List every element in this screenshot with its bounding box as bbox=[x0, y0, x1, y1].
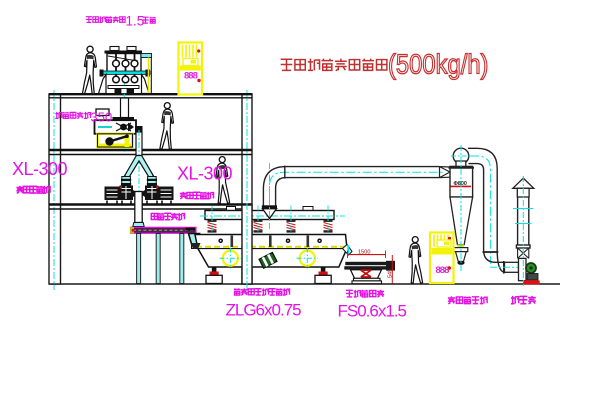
svg-text:545: 545 bbox=[388, 269, 394, 278]
svg-text:888: 888 bbox=[184, 71, 198, 82]
svg-text:350: 350 bbox=[91, 110, 113, 125]
svg-text:XL-300: XL-300 bbox=[177, 164, 233, 184]
svg-text:ZLG6x0.75: ZLG6x0.75 bbox=[226, 301, 302, 320]
svg-text:FS0.6x1.5: FS0.6x1.5 bbox=[338, 302, 407, 321]
svg-text:(500kg/h): (500kg/h) bbox=[388, 48, 488, 80]
svg-text:888: 888 bbox=[436, 265, 450, 276]
svg-text:XL-300: XL-300 bbox=[12, 159, 68, 179]
svg-text:1.5: 1.5 bbox=[126, 14, 145, 29]
svg-text:1500: 1500 bbox=[358, 249, 370, 255]
